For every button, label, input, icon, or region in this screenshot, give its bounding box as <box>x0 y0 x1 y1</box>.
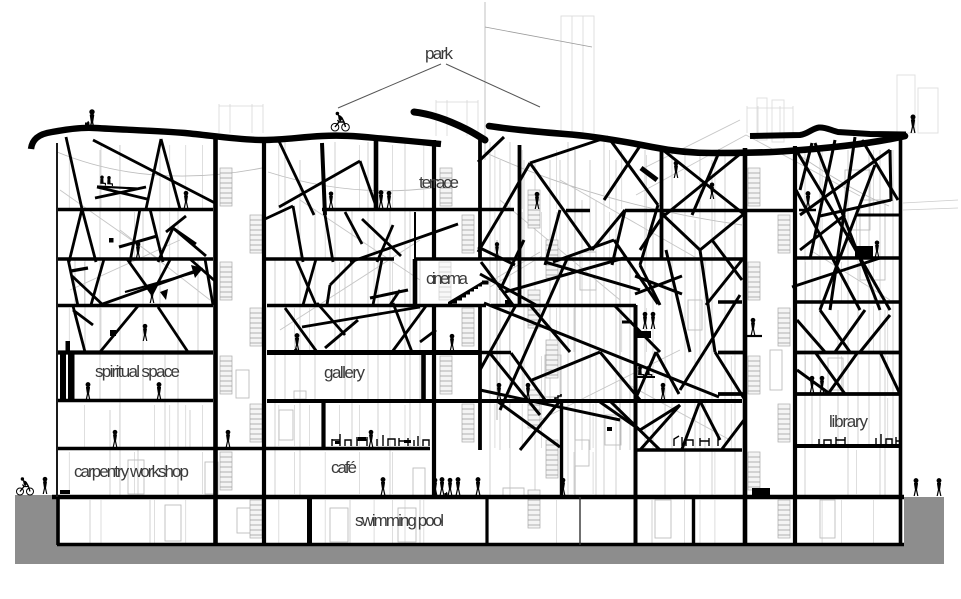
svg-text:terrace: terrace <box>419 173 459 192</box>
svg-text:swimming pool: swimming pool <box>355 511 444 530</box>
svg-text:park: park <box>425 44 454 63</box>
svg-text:cinema: cinema <box>426 269 469 288</box>
svg-text:carpentry workshop: carpentry workshop <box>74 462 189 481</box>
svg-text:café: café <box>331 458 357 477</box>
svg-text:spiritual space: spiritual space <box>95 362 180 381</box>
svg-text:gallery: gallery <box>324 363 366 382</box>
svg-text:library: library <box>829 412 869 431</box>
